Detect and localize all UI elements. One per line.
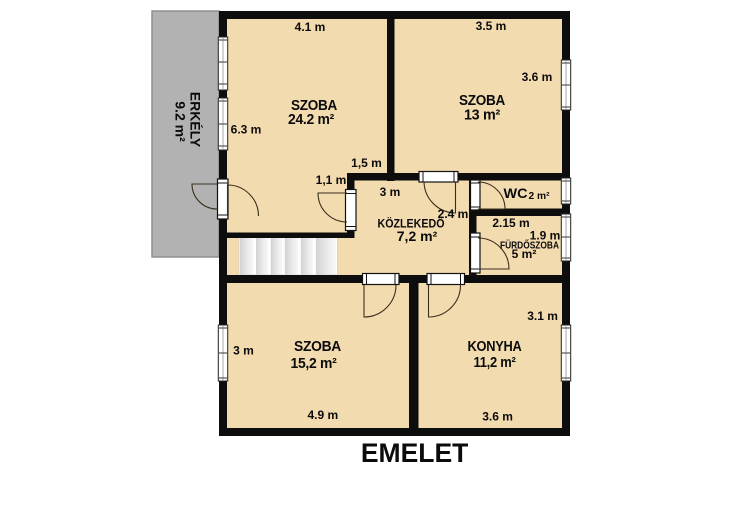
svg-text:3.5 m: 3.5 m <box>476 19 507 33</box>
svg-text:3 m: 3 m <box>233 344 254 358</box>
svg-text:SZOBA: SZOBA <box>294 339 342 355</box>
svg-text:1.9 m: 1.9 m <box>530 229 561 243</box>
svg-text:3 m: 3 m <box>380 185 401 199</box>
svg-text:WC: WC <box>504 185 528 201</box>
svg-text:ERKÉLY: ERKÉLY <box>188 92 204 148</box>
svg-text:EMELET: EMELET <box>361 438 468 468</box>
svg-text:4.9 m: 4.9 m <box>307 408 338 422</box>
svg-text:1,5 m: 1,5 m <box>351 156 382 170</box>
svg-text:13 m²: 13 m² <box>464 108 500 124</box>
svg-text:4.1 m: 4.1 m <box>295 20 326 34</box>
svg-text:11,2 m²: 11,2 m² <box>474 355 516 371</box>
svg-text:15,2 m²: 15,2 m² <box>291 356 337 372</box>
svg-text:2.4 m: 2.4 m <box>438 207 469 221</box>
svg-text:3.6 m: 3.6 m <box>482 410 513 424</box>
svg-text:2.15 m: 2.15 m <box>492 216 529 230</box>
svg-text:KONYHA: KONYHA <box>468 339 523 355</box>
svg-text:24.2 m²: 24.2 m² <box>288 112 334 128</box>
svg-text:2 m²: 2 m² <box>529 190 550 202</box>
svg-text:3.1 m: 3.1 m <box>527 309 558 323</box>
svg-text:1,1 m: 1,1 m <box>316 173 347 187</box>
svg-text:5 m²: 5 m² <box>512 247 537 261</box>
svg-text:6.3 m: 6.3 m <box>231 123 262 137</box>
svg-text:7,2 m²: 7,2 m² <box>397 228 438 244</box>
svg-text:3.6 m: 3.6 m <box>522 70 553 84</box>
svg-text:9.2 m²: 9.2 m² <box>173 101 189 142</box>
